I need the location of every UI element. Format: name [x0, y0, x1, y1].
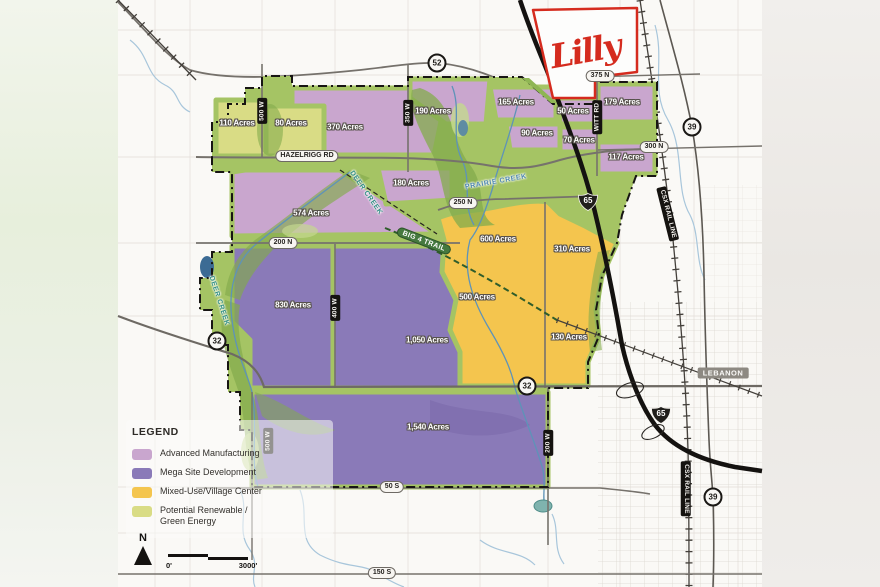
city-label-lebanon: LEBANON [698, 368, 749, 379]
road-label-witt-rd: WITT RD [592, 100, 602, 134]
parcel-label-180: 180 Acres [393, 179, 429, 188]
parcel-label-830: 830 Acres [275, 301, 311, 310]
map-screenshot: Lilly 110 Acres 80 Acres 370 Acres 190 A… [0, 0, 880, 587]
scale-zero-label: 0' [166, 561, 172, 570]
legend-label-mega: Mega Site Development [160, 467, 256, 478]
sr39-shield-north: 39 [683, 118, 702, 137]
parcel-label-190: 190 Acres [415, 107, 451, 116]
sr39-shield-south: 39 [704, 488, 723, 507]
legend-item-renewable: Potential Renewable / Green Energy [132, 505, 327, 527]
legend: LEGEND Advanced Manufacturing Mega Site … [126, 420, 333, 538]
parcel-label-370: 370 Acres [327, 123, 363, 132]
road-label-200w: 200 W [543, 430, 553, 456]
legend-label-mixed: Mixed-Use/Village Center [160, 486, 262, 497]
north-arrow-icon [134, 546, 152, 565]
legend-label-renewable-line2: Green Energy [160, 516, 216, 526]
road-label-hazelrigg: HAZELRIGG RD [275, 150, 338, 162]
rail-label-csx-lower: CSX RAIL LINE [681, 461, 691, 516]
north-label: N [139, 532, 147, 544]
road-label-300n: 300 N [640, 141, 669, 153]
i65-shield-south: 65 [651, 406, 671, 424]
scale-bar-segment-1 [168, 554, 208, 557]
parcel-label-574: 574 Acres [293, 209, 329, 218]
scale-distance-label: 3000' [239, 561, 257, 570]
us52-shield: 52 [428, 54, 447, 73]
parcel-label-117: 117 Acres [608, 153, 643, 162]
road-label-500w-top: 500 W [257, 98, 267, 124]
legend-label-renewable-line1: Potential Renewable / [160, 505, 248, 515]
pond-south [534, 500, 552, 512]
legend-item-advanced: Advanced Manufacturing [132, 448, 327, 460]
parcel-label-1050: 1,050 Acres [406, 336, 448, 345]
road-label-150s: 150 S [368, 567, 396, 579]
i65-shield-label: 65 [651, 409, 671, 418]
road-label-400w: 400 W [330, 295, 340, 321]
legend-item-mixed: Mixed-Use/Village Center [132, 486, 327, 498]
parcel-label-500: 500 Acres [459, 293, 495, 302]
legend-swatch-mixed [132, 487, 152, 498]
parcel-label-130: 130 Acres [551, 333, 587, 342]
i65-shield-label: 65 [578, 196, 598, 205]
legend-item-mega: Mega Site Development [132, 467, 327, 479]
road-label-250n: 250 N [449, 197, 478, 209]
road-label-200n: 200 N [269, 237, 298, 249]
parcel-label-1540: 1,540 Acres [407, 423, 449, 432]
road-label-375n: 375 N [586, 70, 615, 82]
parcel-label-310: 310 Acres [554, 245, 590, 254]
parcel-label-80: 80 Acres [275, 119, 306, 128]
sr32-shield-east: 32 [518, 377, 537, 396]
legend-label-advanced: Advanced Manufacturing [160, 448, 260, 459]
parcel-label-179: 179 Acres [604, 98, 640, 107]
road-label-350w: 350 W [403, 100, 413, 126]
scale-bar-segment-2 [208, 557, 248, 560]
legend-swatch-renewable [132, 506, 152, 517]
northeast-street-grid [700, 185, 762, 302]
parcel-label-90: 90 Acres [521, 129, 552, 138]
sr32-shield-west: 32 [208, 332, 227, 351]
legend-label-renewable: Potential Renewable / Green Energy [160, 505, 248, 527]
legend-swatch-advanced [132, 449, 152, 460]
parcel-label-600: 600 Acres [480, 235, 516, 244]
legend-title: LEGEND [132, 426, 327, 438]
pond-north [458, 120, 468, 136]
parcel-label-165: 165 Acres [498, 98, 534, 107]
i65-shield-north: 65 [578, 193, 598, 211]
legend-swatch-mega [132, 468, 152, 479]
parcel-label-70: 70 Acres [563, 136, 594, 145]
parcel-label-110: 110 Acres [219, 119, 254, 128]
parcel-label-50: 50 Acres [557, 107, 588, 116]
road-label-50s: 50 S [380, 481, 404, 493]
